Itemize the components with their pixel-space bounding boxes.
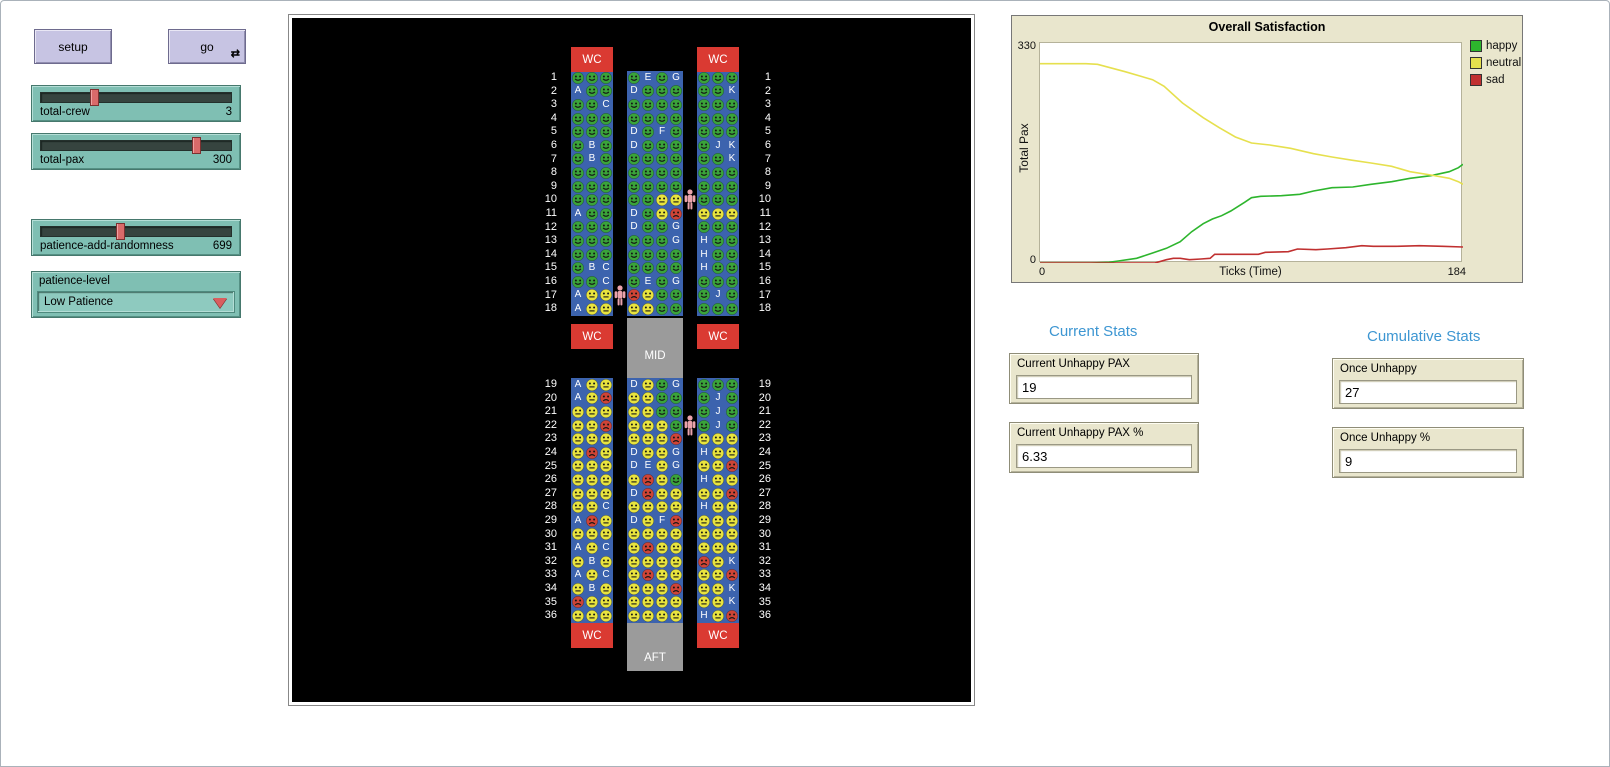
seat[interactable] bbox=[641, 568, 655, 582]
seat[interactable] bbox=[585, 541, 599, 555]
seat[interactable] bbox=[585, 71, 599, 85]
seat[interactable]: G bbox=[669, 378, 683, 392]
seat[interactable] bbox=[669, 555, 683, 569]
seat[interactable] bbox=[571, 98, 585, 112]
seat[interactable] bbox=[571, 405, 585, 419]
seat[interactable]: F bbox=[655, 125, 669, 139]
seat[interactable] bbox=[627, 419, 641, 433]
seat[interactable] bbox=[627, 500, 641, 514]
seat[interactable] bbox=[711, 275, 725, 289]
seat[interactable] bbox=[599, 207, 613, 221]
seat[interactable] bbox=[697, 207, 711, 221]
seat[interactable] bbox=[571, 166, 585, 180]
seat[interactable] bbox=[571, 261, 585, 275]
seat[interactable] bbox=[725, 221, 739, 235]
seat[interactable] bbox=[599, 153, 613, 167]
seat[interactable]: K bbox=[725, 555, 739, 569]
seat[interactable] bbox=[627, 302, 641, 316]
seat[interactable] bbox=[599, 596, 613, 610]
seat[interactable] bbox=[599, 392, 613, 406]
seat[interactable] bbox=[697, 487, 711, 501]
seat[interactable] bbox=[627, 71, 641, 85]
seat[interactable] bbox=[697, 432, 711, 446]
seat[interactable] bbox=[571, 500, 585, 514]
seat[interactable] bbox=[725, 166, 739, 180]
seat[interactable]: C bbox=[599, 568, 613, 582]
seat[interactable] bbox=[669, 405, 683, 419]
seat[interactable] bbox=[725, 207, 739, 221]
seat[interactable] bbox=[627, 261, 641, 275]
seat[interactable] bbox=[711, 193, 725, 207]
seat[interactable]: A bbox=[571, 207, 585, 221]
seat[interactable] bbox=[655, 609, 669, 623]
seat[interactable] bbox=[585, 405, 599, 419]
seat[interactable] bbox=[599, 125, 613, 139]
seat[interactable] bbox=[669, 392, 683, 406]
seat[interactable] bbox=[711, 487, 725, 501]
seat[interactable] bbox=[697, 180, 711, 194]
seat[interactable] bbox=[641, 500, 655, 514]
seat[interactable]: E bbox=[641, 71, 655, 85]
seat[interactable] bbox=[655, 153, 669, 167]
seat[interactable] bbox=[669, 85, 683, 99]
seat[interactable] bbox=[697, 392, 711, 406]
seat[interactable] bbox=[725, 180, 739, 194]
seat[interactable] bbox=[571, 193, 585, 207]
total-crew-slider[interactable]: total-crew 3 bbox=[31, 85, 241, 122]
seat[interactable] bbox=[711, 112, 725, 126]
seat[interactable] bbox=[711, 582, 725, 596]
seat[interactable] bbox=[669, 166, 683, 180]
seat[interactable] bbox=[669, 609, 683, 623]
seat[interactable] bbox=[641, 609, 655, 623]
seat[interactable] bbox=[725, 71, 739, 85]
seat[interactable] bbox=[725, 261, 739, 275]
seat[interactable] bbox=[669, 261, 683, 275]
seat[interactable] bbox=[711, 302, 725, 316]
seat[interactable] bbox=[655, 180, 669, 194]
seat[interactable] bbox=[641, 261, 655, 275]
seat[interactable] bbox=[585, 302, 599, 316]
seat[interactable]: K bbox=[725, 139, 739, 153]
seat[interactable] bbox=[725, 500, 739, 514]
seat[interactable] bbox=[641, 221, 655, 235]
seat[interactable] bbox=[711, 153, 725, 167]
seat[interactable] bbox=[711, 555, 725, 569]
seat[interactable] bbox=[669, 180, 683, 194]
seat[interactable] bbox=[627, 112, 641, 126]
seat[interactable] bbox=[585, 180, 599, 194]
seat[interactable] bbox=[641, 207, 655, 221]
seat[interactable]: H bbox=[697, 473, 711, 487]
seat[interactable] bbox=[585, 221, 599, 235]
seat[interactable] bbox=[627, 392, 641, 406]
seat[interactable] bbox=[641, 514, 655, 528]
seat[interactable] bbox=[585, 193, 599, 207]
seat[interactable] bbox=[585, 207, 599, 221]
seat[interactable]: D bbox=[627, 460, 641, 474]
seat[interactable] bbox=[627, 275, 641, 289]
seat[interactable] bbox=[711, 500, 725, 514]
seat[interactable] bbox=[655, 221, 669, 235]
seat[interactable]: H bbox=[697, 446, 711, 460]
seat[interactable] bbox=[585, 446, 599, 460]
seat[interactable]: B bbox=[585, 139, 599, 153]
seat[interactable] bbox=[655, 112, 669, 126]
seat[interactable] bbox=[641, 180, 655, 194]
seat[interactable]: G bbox=[669, 275, 683, 289]
seat[interactable] bbox=[571, 473, 585, 487]
seat[interactable] bbox=[641, 473, 655, 487]
seat[interactable] bbox=[627, 609, 641, 623]
seat[interactable] bbox=[669, 568, 683, 582]
seat[interactable] bbox=[599, 302, 613, 316]
seat[interactable] bbox=[669, 125, 683, 139]
seat[interactable]: D bbox=[627, 139, 641, 153]
seat[interactable]: J bbox=[711, 392, 725, 406]
seat[interactable] bbox=[697, 139, 711, 153]
seat[interactable] bbox=[599, 166, 613, 180]
seat[interactable] bbox=[669, 248, 683, 262]
seat[interactable] bbox=[641, 392, 655, 406]
seat[interactable] bbox=[599, 289, 613, 303]
seat[interactable] bbox=[585, 98, 599, 112]
seat[interactable] bbox=[655, 432, 669, 446]
seat[interactable] bbox=[599, 180, 613, 194]
seat[interactable] bbox=[571, 153, 585, 167]
seat[interactable] bbox=[669, 528, 683, 542]
slider-thumb[interactable] bbox=[116, 223, 125, 240]
seat[interactable] bbox=[627, 180, 641, 194]
seat[interactable]: C bbox=[599, 500, 613, 514]
seat[interactable] bbox=[697, 98, 711, 112]
seat[interactable] bbox=[641, 582, 655, 596]
seat[interactable] bbox=[599, 446, 613, 460]
seat[interactable] bbox=[599, 234, 613, 248]
seat[interactable] bbox=[697, 460, 711, 474]
seat[interactable] bbox=[571, 125, 585, 139]
seat[interactable]: H bbox=[697, 234, 711, 248]
seat[interactable] bbox=[711, 85, 725, 99]
seat[interactable] bbox=[655, 392, 669, 406]
seat[interactable]: A bbox=[571, 302, 585, 316]
seat[interactable] bbox=[641, 405, 655, 419]
seat[interactable] bbox=[599, 378, 613, 392]
seat[interactable]: B bbox=[585, 555, 599, 569]
seat[interactable] bbox=[655, 596, 669, 610]
seat[interactable] bbox=[641, 125, 655, 139]
seat[interactable]: C bbox=[599, 275, 613, 289]
seat[interactable]: G bbox=[669, 446, 683, 460]
setup-button[interactable]: setup bbox=[34, 29, 112, 64]
seat[interactable] bbox=[669, 419, 683, 433]
seat[interactable]: A bbox=[571, 289, 585, 303]
seat[interactable] bbox=[641, 432, 655, 446]
seat[interactable] bbox=[655, 98, 669, 112]
seat[interactable] bbox=[725, 125, 739, 139]
seat[interactable] bbox=[725, 514, 739, 528]
seat[interactable] bbox=[725, 405, 739, 419]
seat[interactable] bbox=[669, 514, 683, 528]
seat[interactable] bbox=[627, 528, 641, 542]
seat[interactable] bbox=[725, 609, 739, 623]
seat[interactable] bbox=[571, 609, 585, 623]
seat[interactable] bbox=[655, 473, 669, 487]
seat[interactable]: H bbox=[697, 248, 711, 262]
world-view[interactable]: 11EG22ADK33C4455DF66BDJK77BK889910101111… bbox=[292, 18, 971, 702]
seat[interactable] bbox=[655, 248, 669, 262]
seat[interactable] bbox=[599, 555, 613, 569]
seat[interactable] bbox=[655, 71, 669, 85]
seat[interactable] bbox=[655, 541, 669, 555]
seat[interactable] bbox=[599, 609, 613, 623]
crew-member[interactable] bbox=[684, 415, 696, 436]
seat[interactable] bbox=[725, 568, 739, 582]
seat[interactable] bbox=[711, 568, 725, 582]
seat[interactable]: B bbox=[585, 153, 599, 167]
seat[interactable] bbox=[599, 487, 613, 501]
seat[interactable] bbox=[725, 432, 739, 446]
seat[interactable] bbox=[725, 541, 739, 555]
seat[interactable] bbox=[711, 528, 725, 542]
seat[interactable] bbox=[725, 302, 739, 316]
seat[interactable] bbox=[697, 221, 711, 235]
seat[interactable] bbox=[669, 289, 683, 303]
seat[interactable]: A bbox=[571, 85, 585, 99]
seat[interactable] bbox=[585, 112, 599, 126]
seat[interactable] bbox=[697, 555, 711, 569]
seat[interactable] bbox=[627, 193, 641, 207]
go-button[interactable]: go ⇄ bbox=[168, 29, 246, 64]
seat[interactable] bbox=[627, 289, 641, 303]
seat[interactable] bbox=[571, 582, 585, 596]
seat[interactable]: C bbox=[599, 541, 613, 555]
seat[interactable] bbox=[599, 473, 613, 487]
seat[interactable] bbox=[627, 98, 641, 112]
seat[interactable] bbox=[585, 514, 599, 528]
seat[interactable] bbox=[599, 193, 613, 207]
seat[interactable] bbox=[585, 609, 599, 623]
seat[interactable] bbox=[725, 289, 739, 303]
seat[interactable] bbox=[571, 180, 585, 194]
seat[interactable]: K bbox=[725, 85, 739, 99]
seat[interactable] bbox=[669, 582, 683, 596]
seat[interactable] bbox=[697, 582, 711, 596]
seat[interactable]: B bbox=[585, 582, 599, 596]
seat[interactable] bbox=[585, 473, 599, 487]
seat[interactable] bbox=[627, 596, 641, 610]
seat[interactable]: A bbox=[571, 378, 585, 392]
seat[interactable] bbox=[711, 261, 725, 275]
seat[interactable] bbox=[585, 125, 599, 139]
seat[interactable] bbox=[585, 568, 599, 582]
seat[interactable] bbox=[641, 528, 655, 542]
seat[interactable] bbox=[669, 596, 683, 610]
patience-add-randomness-slider[interactable]: patience-add-randomness 699 bbox=[31, 219, 241, 256]
seat[interactable] bbox=[585, 500, 599, 514]
seat[interactable] bbox=[711, 460, 725, 474]
seat[interactable] bbox=[697, 275, 711, 289]
seat[interactable] bbox=[641, 193, 655, 207]
seat[interactable]: B bbox=[585, 261, 599, 275]
seat[interactable] bbox=[711, 473, 725, 487]
seat[interactable] bbox=[599, 248, 613, 262]
seat[interactable] bbox=[697, 71, 711, 85]
seat[interactable] bbox=[711, 514, 725, 528]
seat[interactable] bbox=[697, 568, 711, 582]
seat[interactable] bbox=[697, 112, 711, 126]
seat[interactable] bbox=[711, 432, 725, 446]
seat[interactable] bbox=[725, 98, 739, 112]
seat[interactable] bbox=[697, 541, 711, 555]
seat[interactable] bbox=[641, 289, 655, 303]
seat[interactable] bbox=[585, 596, 599, 610]
seat[interactable] bbox=[669, 112, 683, 126]
seat[interactable]: C bbox=[599, 98, 613, 112]
seat[interactable] bbox=[585, 248, 599, 262]
seat[interactable] bbox=[655, 582, 669, 596]
seat[interactable] bbox=[711, 166, 725, 180]
seat[interactable] bbox=[711, 596, 725, 610]
seat[interactable] bbox=[641, 153, 655, 167]
seat[interactable] bbox=[725, 392, 739, 406]
seat[interactable]: J bbox=[711, 405, 725, 419]
seat[interactable] bbox=[697, 596, 711, 610]
seat[interactable] bbox=[627, 582, 641, 596]
seat[interactable] bbox=[571, 221, 585, 235]
seat[interactable] bbox=[571, 275, 585, 289]
seat[interactable] bbox=[725, 419, 739, 433]
total-pax-slider[interactable]: total-pax 300 bbox=[31, 133, 241, 170]
seat[interactable]: J bbox=[711, 289, 725, 303]
seat[interactable] bbox=[711, 180, 725, 194]
seat[interactable] bbox=[571, 112, 585, 126]
seat[interactable] bbox=[655, 234, 669, 248]
seat[interactable] bbox=[641, 248, 655, 262]
seat[interactable] bbox=[627, 153, 641, 167]
seat[interactable] bbox=[627, 405, 641, 419]
seat[interactable] bbox=[711, 248, 725, 262]
seat[interactable] bbox=[725, 248, 739, 262]
seat[interactable]: H bbox=[697, 609, 711, 623]
seat[interactable] bbox=[627, 473, 641, 487]
seat[interactable] bbox=[697, 125, 711, 139]
seat[interactable] bbox=[655, 166, 669, 180]
seat[interactable] bbox=[697, 193, 711, 207]
seat[interactable] bbox=[641, 112, 655, 126]
seat[interactable]: D bbox=[627, 221, 641, 235]
seat[interactable]: G bbox=[669, 460, 683, 474]
seat[interactable] bbox=[655, 460, 669, 474]
seat[interactable] bbox=[641, 139, 655, 153]
seat[interactable]: K bbox=[725, 596, 739, 610]
seat[interactable] bbox=[697, 85, 711, 99]
seat[interactable] bbox=[641, 596, 655, 610]
seat[interactable] bbox=[627, 166, 641, 180]
seat[interactable]: D bbox=[627, 207, 641, 221]
slider-thumb[interactable] bbox=[192, 137, 201, 154]
seat[interactable] bbox=[711, 125, 725, 139]
seat[interactable] bbox=[585, 289, 599, 303]
seat[interactable] bbox=[697, 166, 711, 180]
seat[interactable]: A bbox=[571, 392, 585, 406]
seat[interactable] bbox=[655, 378, 669, 392]
seat[interactable] bbox=[571, 139, 585, 153]
seat[interactable]: J bbox=[711, 419, 725, 433]
seat[interactable] bbox=[585, 166, 599, 180]
seat[interactable] bbox=[655, 261, 669, 275]
seat[interactable] bbox=[571, 432, 585, 446]
seat[interactable] bbox=[599, 405, 613, 419]
seat[interactable] bbox=[655, 555, 669, 569]
seat[interactable] bbox=[627, 432, 641, 446]
seat[interactable]: H bbox=[697, 261, 711, 275]
seat[interactable]: D bbox=[627, 378, 641, 392]
seat[interactable] bbox=[571, 71, 585, 85]
seat[interactable] bbox=[697, 289, 711, 303]
seat[interactable]: D bbox=[627, 125, 641, 139]
seat[interactable] bbox=[641, 234, 655, 248]
seat[interactable]: K bbox=[725, 582, 739, 596]
seat[interactable] bbox=[599, 582, 613, 596]
seat[interactable]: H bbox=[697, 500, 711, 514]
seat[interactable] bbox=[655, 528, 669, 542]
seat[interactable] bbox=[711, 234, 725, 248]
seat[interactable] bbox=[669, 139, 683, 153]
seat[interactable] bbox=[571, 555, 585, 569]
seat[interactable]: K bbox=[725, 153, 739, 167]
seat[interactable] bbox=[725, 193, 739, 207]
seat[interactable] bbox=[669, 153, 683, 167]
seat[interactable] bbox=[655, 446, 669, 460]
seat[interactable] bbox=[627, 568, 641, 582]
seat[interactable] bbox=[711, 446, 725, 460]
seat[interactable] bbox=[697, 528, 711, 542]
seat[interactable] bbox=[711, 221, 725, 235]
seat[interactable] bbox=[725, 473, 739, 487]
seat[interactable] bbox=[697, 153, 711, 167]
seat[interactable] bbox=[697, 514, 711, 528]
seat[interactable] bbox=[641, 302, 655, 316]
seat[interactable] bbox=[641, 419, 655, 433]
seat[interactable] bbox=[669, 98, 683, 112]
seat[interactable] bbox=[641, 541, 655, 555]
seat[interactable] bbox=[599, 71, 613, 85]
seat[interactable] bbox=[655, 289, 669, 303]
seat[interactable]: D bbox=[627, 514, 641, 528]
seat[interactable] bbox=[571, 446, 585, 460]
crew-member[interactable] bbox=[614, 285, 626, 306]
seat[interactable] bbox=[627, 541, 641, 555]
seat[interactable] bbox=[571, 596, 585, 610]
seat[interactable] bbox=[627, 234, 641, 248]
seat[interactable] bbox=[599, 528, 613, 542]
seat[interactable] bbox=[725, 460, 739, 474]
seat[interactable] bbox=[655, 193, 669, 207]
seat[interactable] bbox=[711, 378, 725, 392]
seat[interactable] bbox=[585, 432, 599, 446]
seat[interactable]: A bbox=[571, 514, 585, 528]
seat[interactable] bbox=[711, 98, 725, 112]
seat[interactable]: G bbox=[669, 234, 683, 248]
seat[interactable] bbox=[585, 275, 599, 289]
seat[interactable] bbox=[655, 568, 669, 582]
seat[interactable] bbox=[725, 528, 739, 542]
seat[interactable] bbox=[585, 378, 599, 392]
seat[interactable] bbox=[571, 528, 585, 542]
seat[interactable]: C bbox=[599, 261, 613, 275]
seat[interactable] bbox=[655, 85, 669, 99]
